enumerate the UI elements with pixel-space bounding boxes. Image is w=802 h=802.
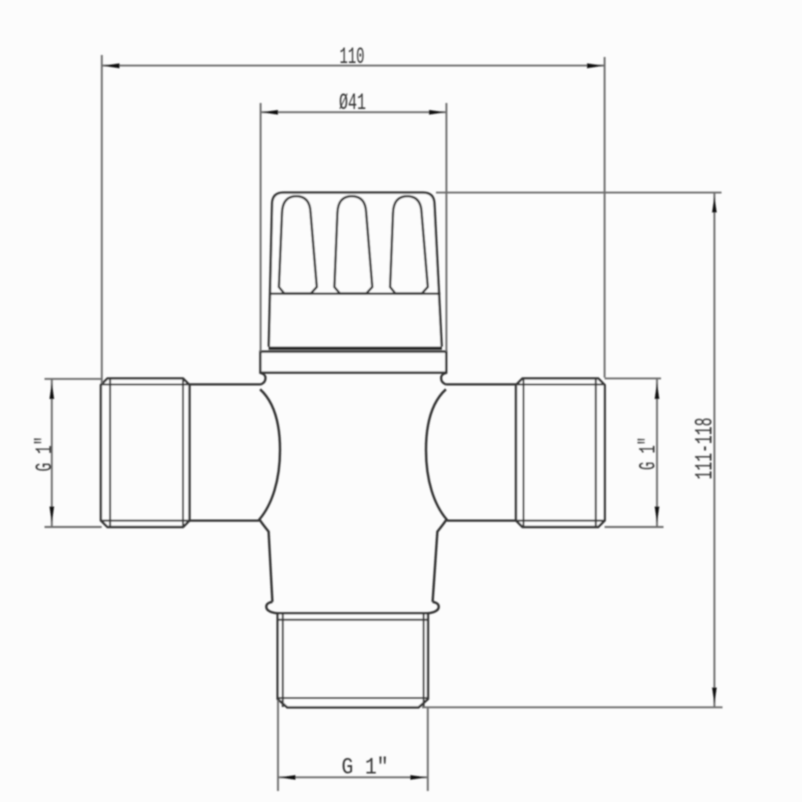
svg-text:G 1″: G 1″ [636,437,662,470]
svg-text:Ø41: Ø41 [339,90,366,116]
svg-text:110: 110 [340,44,365,70]
svg-text:111-118: 111-118 [691,418,720,480]
svg-text:G 1″: G 1″ [342,755,389,781]
svg-text:G 1″: G 1″ [32,437,58,472]
